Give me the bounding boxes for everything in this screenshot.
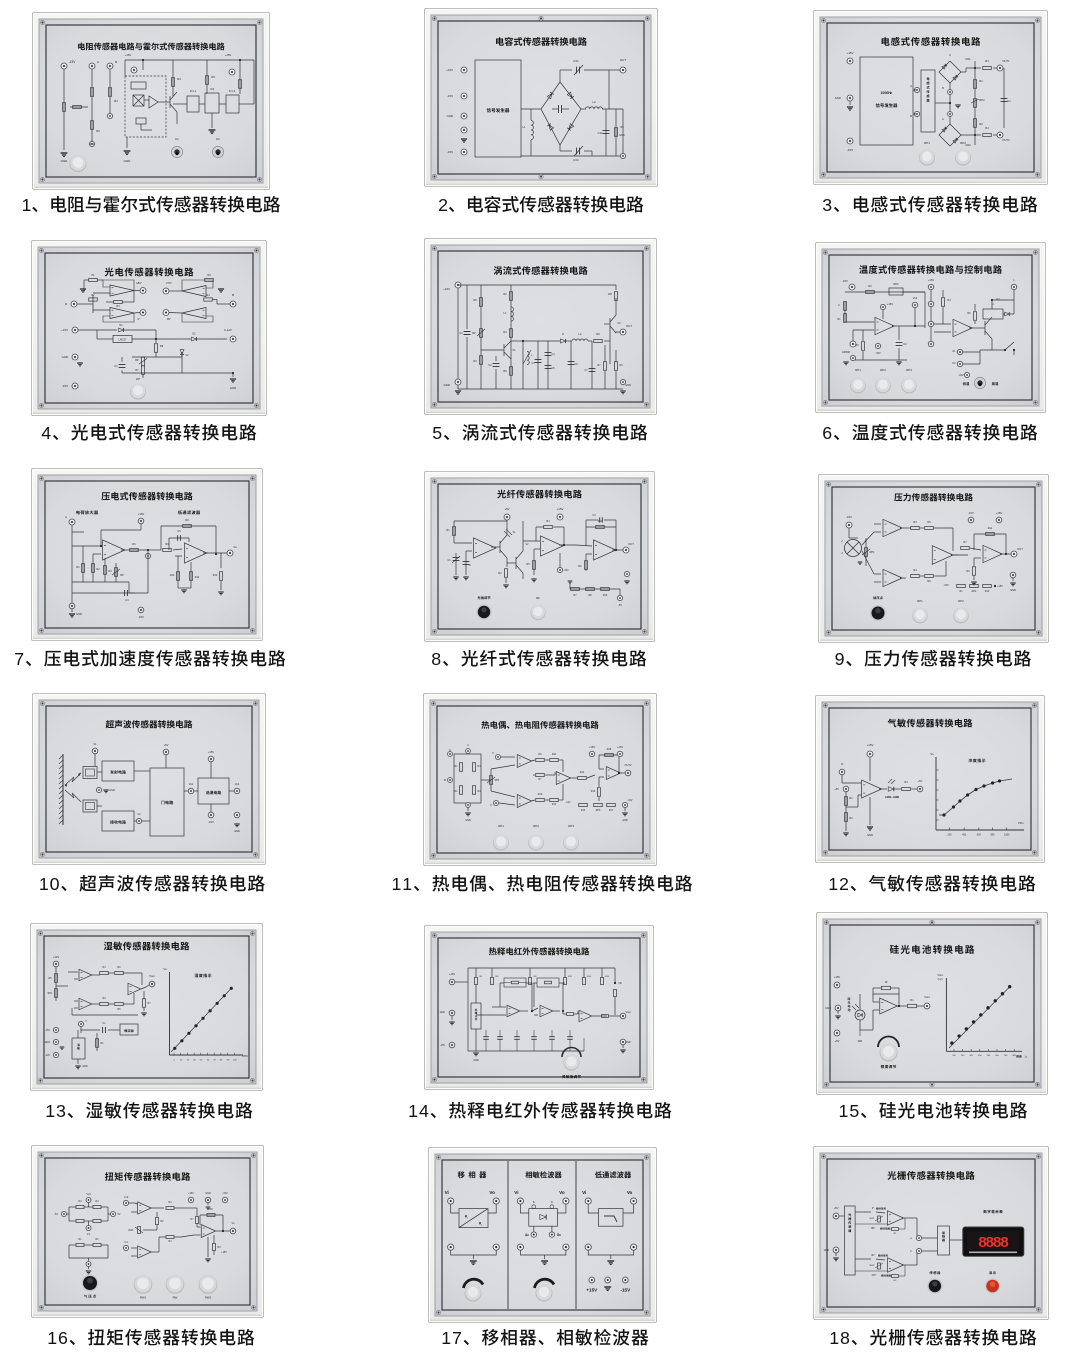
- svg-text:-15V: -15V: [627, 799, 632, 802]
- svg-text:GND: GND: [62, 355, 68, 359]
- svg-text:RP3: RP3: [596, 810, 601, 812]
- svg-text:R2: R2: [96, 129, 100, 133]
- svg-text:z: z: [890, 91, 892, 95]
- svg-text:AD590: AD590: [842, 350, 850, 354]
- svg-text:Ac: Ac: [525, 1233, 529, 1237]
- svg-text:R2: R2: [979, 122, 983, 126]
- svg-text:A: A: [97, 60, 99, 64]
- svg-text:-12V: -12V: [45, 1054, 50, 1057]
- svg-text:R2: R2: [868, 284, 872, 288]
- svg-text:RP3: RP3: [568, 824, 574, 828]
- svg-text:R1: R1: [849, 796, 853, 800]
- svg-text:1: 1: [39, 874, 49, 894]
- svg-text:R3: R3: [114, 99, 118, 103]
- svg-text:1: 1: [45, 1101, 55, 1121]
- svg-text:R1: R1: [910, 998, 914, 1002]
- svg-text:-15V: -15V: [847, 148, 853, 152]
- svg-text:RW2: RW2: [870, 1265, 876, 1267]
- svg-text:OUT2: OUT2: [625, 763, 632, 767]
- svg-text:V+0: V+0: [86, 1193, 91, 1196]
- svg-text:R9: R9: [620, 125, 624, 129]
- svg-text:90°: 90°: [167, 317, 171, 321]
- svg-text:R10: R10: [985, 590, 990, 593]
- svg-text:V1: V1: [93, 742, 97, 746]
- svg-text:-15V: -15V: [563, 569, 569, 572]
- svg-text:RP1: RP1: [495, 779, 500, 782]
- svg-text:-15V: -15V: [842, 279, 848, 283]
- svg-text:+15V: +15V: [586, 1288, 598, 1293]
- svg-text:400: 400: [962, 834, 967, 837]
- svg-text:R2: R2: [849, 816, 853, 820]
- svg-text:L2: L2: [592, 100, 596, 104]
- svg-text:B: B: [232, 293, 234, 297]
- svg-text:R10: R10: [538, 793, 543, 796]
- svg-text:RP: RP: [120, 574, 124, 577]
- svg-text:+15V: +15V: [61, 328, 68, 332]
- svg-text:C: C: [838, 304, 840, 307]
- svg-text:200: 200: [948, 834, 953, 837]
- svg-text:+15V: +15V: [589, 745, 595, 749]
- svg-text:270°: 270°: [872, 1275, 877, 1277]
- svg-text:-15V: -15V: [138, 615, 144, 619]
- svg-text:R4: R4: [985, 126, 989, 130]
- svg-text:-15V: -15V: [846, 515, 852, 519]
- svg-text:-15V: -15V: [968, 511, 974, 515]
- svg-text:GND: GND: [61, 159, 69, 163]
- svg-text:1000: 1000: [1004, 834, 1010, 837]
- svg-text:RW1: RW1: [140, 1296, 147, 1300]
- svg-text:RP1: RP1: [48, 992, 53, 995]
- svg-text:-15V: -15V: [62, 384, 68, 388]
- svg-text:-15V: -15V: [69, 60, 77, 64]
- svg-text:180°: 180°: [871, 1228, 876, 1230]
- svg-text:C10: C10: [598, 131, 603, 135]
- svg-text:Vi: Vi: [582, 1190, 586, 1195]
- svg-text:8888: 8888: [978, 1234, 1008, 1251]
- svg-text:+5V: +5V: [834, 1206, 839, 1210]
- svg-text:0°: 0°: [138, 317, 141, 321]
- svg-text:9: 9: [835, 649, 845, 669]
- svg-text:K2: K2: [216, 137, 220, 141]
- svg-text:+15V: +15V: [846, 51, 853, 55]
- svg-text:V1: V1: [512, 348, 516, 352]
- svg-text:GND: GND: [447, 114, 453, 118]
- svg-text:2: 2: [839, 874, 849, 894]
- svg-text:RP2: RP2: [972, 590, 977, 593]
- svg-text:GND: GND: [835, 96, 841, 100]
- svg-text:+15V: +15V: [834, 975, 841, 979]
- svg-text:R15: R15: [607, 748, 612, 751]
- svg-text:5: 5: [849, 1101, 859, 1121]
- svg-text:270°: 270°: [166, 281, 172, 285]
- svg-text:R17: R17: [609, 810, 614, 812]
- svg-text:R13: R13: [581, 810, 586, 812]
- svg-text:RW: RW: [173, 1296, 178, 1300]
- svg-text:R16: R16: [591, 790, 596, 793]
- svg-text:OUT: OUT: [1017, 547, 1023, 551]
- svg-text:4: 4: [419, 1101, 429, 1121]
- svg-text:GND: GND: [465, 819, 471, 822]
- svg-text:R5: R5: [503, 369, 507, 373]
- svg-text:GND: GND: [825, 1007, 831, 1010]
- svg-text:Vo: Vo: [233, 545, 237, 549]
- svg-text:+15V: +15V: [125, 53, 132, 57]
- svg-text:4: 4: [41, 423, 51, 443]
- svg-text:6: 6: [822, 423, 832, 443]
- svg-text:800: 800: [991, 834, 996, 837]
- svg-text:RP1: RP1: [870, 551, 875, 554]
- svg-text:Rf: Rf: [885, 980, 888, 984]
- svg-text:R6: R6: [596, 332, 600, 336]
- svg-text:R11: R11: [988, 527, 993, 530]
- svg-text:3: 3: [56, 1101, 66, 1121]
- svg-text:OUT: OUT: [626, 324, 632, 328]
- svg-text:Vo1: Vo1: [189, 782, 194, 786]
- svg-text:5V: 5V: [118, 1213, 121, 1216]
- svg-text:C: C: [469, 564, 471, 567]
- svg-text:0°: 0°: [872, 1208, 874, 1210]
- svg-text:GND: GND: [234, 829, 240, 833]
- svg-text:-15V: -15V: [208, 820, 214, 824]
- svg-text:-15V: -15V: [440, 1044, 445, 1047]
- svg-text:1: 1: [828, 874, 838, 894]
- svg-text:1: 1: [408, 1101, 418, 1121]
- svg-text:IC1-1: IC1-1: [190, 89, 197, 93]
- svg-text:GND: GND: [625, 383, 631, 387]
- svg-text:600: 600: [977, 834, 982, 837]
- svg-text:-12V: -12V: [565, 801, 570, 804]
- svg-text:PPm: PPm: [1018, 822, 1023, 825]
- svg-text:B: B: [115, 60, 117, 64]
- svg-text:K1: K1: [175, 137, 179, 141]
- svg-text:V2: V2: [137, 812, 141, 816]
- svg-text:+5V: +5V: [918, 779, 923, 783]
- svg-text:R12: R12: [213, 574, 218, 577]
- svg-text:W1: W1: [90, 142, 95, 146]
- svg-text:Vo: Vo: [627, 1190, 633, 1195]
- svg-text:GND: GND: [473, 1059, 479, 1062]
- svg-text:GND: GND: [45, 1041, 51, 1044]
- svg-text:Vo: Vo: [559, 1190, 565, 1195]
- svg-text:R4: R4: [503, 330, 507, 334]
- svg-text:Vi: Vi: [841, 762, 844, 766]
- svg-text:-15V: -15V: [45, 1029, 50, 1032]
- svg-text:R5: R5: [211, 75, 215, 79]
- svg-text:Vout: Vout: [924, 995, 930, 999]
- svg-text:1: 1: [441, 1328, 451, 1348]
- svg-text:+15V: +15V: [997, 585, 1003, 588]
- svg-text:R8: R8: [608, 292, 612, 296]
- svg-text:+15V: +15V: [996, 511, 1003, 515]
- svg-text:GND: GND: [1010, 588, 1016, 592]
- svg-text:Vcc: Vcc: [996, 297, 1001, 301]
- svg-text:Vo: Vo: [489, 1190, 495, 1195]
- svg-text:Dc: Dc: [557, 1233, 561, 1237]
- svg-text:0: 0: [50, 874, 60, 894]
- svg-text:B: B: [444, 778, 446, 782]
- svg-text:C1: C1: [459, 331, 463, 335]
- svg-text:GND: GND: [205, 1192, 211, 1195]
- svg-text:R2: R2: [503, 292, 507, 296]
- svg-text:RP1: RP1: [924, 141, 930, 145]
- svg-text:RP1: RP1: [855, 368, 861, 372]
- svg-text:A: A: [910, 84, 912, 88]
- svg-text:V2: V2: [617, 321, 621, 325]
- svg-text:L1: L1: [522, 125, 526, 129]
- svg-text:+15V: +15V: [138, 512, 145, 516]
- svg-text:OUT: OUT: [628, 542, 634, 546]
- svg-text:6: 6: [58, 1328, 68, 1348]
- svg-text:LM317: LM317: [119, 338, 127, 342]
- svg-text:RP: RP: [135, 359, 139, 362]
- svg-text:RP1: RP1: [498, 824, 504, 828]
- svg-text:1: 1: [839, 1101, 849, 1121]
- svg-text:Vout: Vout: [625, 1011, 630, 1014]
- svg-text:+12V: +12V: [53, 955, 60, 959]
- svg-text:+15V: +15V: [208, 750, 215, 754]
- svg-text:GND: GND: [824, 1249, 830, 1252]
- svg-text:-15V: -15V: [958, 374, 964, 377]
- svg-text:Vo: Vo: [930, 752, 934, 756]
- svg-text:GND: GND: [622, 819, 628, 822]
- svg-text:5: 5: [432, 423, 442, 443]
- svg-text:180°: 180°: [136, 281, 142, 285]
- svg-text:RP: RP: [136, 377, 140, 381]
- svg-text:RW1: RW1: [870, 1218, 876, 1220]
- svg-text:RH%: RH%: [242, 1055, 248, 1058]
- svg-text:+15V: +15V: [188, 1192, 194, 1195]
- svg-text:1: 1: [47, 1328, 57, 1348]
- svg-text:CX2: CX2: [573, 158, 579, 162]
- svg-text:-15V: -15V: [447, 150, 453, 154]
- svg-text:GND: GND: [76, 612, 82, 616]
- svg-text:GND: GND: [619, 133, 625, 137]
- svg-text:R11: R11: [195, 576, 200, 579]
- svg-text:GND: GND: [867, 833, 873, 837]
- svg-text:R10: R10: [170, 574, 175, 577]
- svg-text:+5V: +5V: [504, 507, 509, 511]
- svg-text:C2: C2: [488, 363, 492, 367]
- svg-text:0-12V: 0-12V: [224, 328, 232, 332]
- svg-text:+15V: +15V: [446, 68, 453, 72]
- svg-text:GND: GND: [82, 1065, 88, 1068]
- svg-text:+5V: +5V: [164, 743, 169, 747]
- svg-text:3: 3: [822, 195, 832, 215]
- svg-text:OUT2: OUT2: [1002, 138, 1010, 142]
- svg-text:GND: GND: [444, 383, 450, 387]
- svg-text:D: D: [551, 1201, 553, 1204]
- svg-text:1: 1: [829, 1328, 839, 1348]
- svg-text:+15V: +15V: [449, 972, 455, 976]
- svg-text:1: 1: [391, 874, 401, 894]
- svg-text:Vout: Vout: [937, 973, 942, 977]
- svg-text:R4: R4: [177, 77, 181, 81]
- svg-text:-5V: -5V: [618, 604, 622, 607]
- svg-text:7: 7: [452, 1328, 462, 1348]
- svg-text:8: 8: [431, 649, 441, 669]
- svg-text:RW1: RW1: [128, 1230, 134, 1232]
- svg-text:Vi: Vi: [514, 1190, 518, 1195]
- svg-text:UR2: UR2: [965, 143, 971, 147]
- svg-text:R10: R10: [603, 594, 608, 597]
- svg-text:A: A: [65, 515, 67, 519]
- svg-text:R3: R3: [473, 359, 477, 363]
- svg-text:RP2: RP2: [893, 282, 899, 286]
- svg-text:+15V: +15V: [887, 302, 893, 306]
- svg-text:R1: R1: [979, 79, 983, 83]
- svg-text:8: 8: [840, 1328, 850, 1348]
- svg-text:1: 1: [402, 874, 412, 894]
- svg-text:RF: RF: [536, 596, 540, 600]
- svg-text:CX1: CX1: [573, 59, 579, 63]
- svg-text:B: B: [910, 114, 912, 118]
- svg-text:1: 1: [21, 195, 31, 215]
- svg-text:RP2: RP2: [533, 824, 539, 828]
- svg-text:2: 2: [438, 195, 448, 215]
- svg-text:OUT1: OUT1: [1002, 59, 1010, 63]
- svg-text:-15V: -15V: [875, 352, 881, 355]
- svg-text:+15V: +15V: [443, 287, 450, 291]
- svg-text:-15V: -15V: [943, 584, 949, 587]
- svg-text:+15V: +15V: [557, 507, 564, 511]
- svg-text:GND: GND: [124, 159, 132, 163]
- svg-text:Vi: Vi: [445, 1190, 449, 1195]
- svg-text:+5V: +5V: [835, 1039, 840, 1043]
- svg-text:R12: R12: [552, 803, 557, 806]
- svg-text:D: D: [562, 332, 564, 336]
- svg-text:C1: C1: [1007, 99, 1011, 103]
- svg-text:+15V: +15V: [221, 1251, 227, 1254]
- svg-text:OUT: OUT: [620, 58, 627, 62]
- svg-text:+15V: +15V: [867, 743, 874, 747]
- svg-text:7: 7: [14, 649, 24, 669]
- svg-text:+5V: +5V: [834, 787, 839, 791]
- svg-text:Vo1: Vo1: [913, 296, 918, 300]
- svg-text:R3: R3: [985, 59, 989, 63]
- svg-text:RP2: RP2: [880, 368, 886, 372]
- svg-text:GND: GND: [625, 1041, 631, 1044]
- svg-text:R11: R11: [552, 753, 557, 756]
- svg-text:Vo: Vo: [163, 967, 167, 971]
- svg-text:RW2: RW2: [205, 1296, 212, 1300]
- svg-text:-15V: -15V: [620, 1288, 631, 1293]
- svg-text:WR: WR: [858, 1039, 863, 1043]
- svg-text:UR1: UR1: [965, 57, 971, 61]
- svg-text:VD: VD: [618, 982, 622, 985]
- svg-text:RP3: RP3: [906, 368, 912, 372]
- svg-text:IC2: IC2: [210, 87, 215, 91]
- svg-text:-15V: -15V: [222, 1192, 228, 1195]
- svg-text:+15V: +15V: [225, 53, 232, 57]
- svg-text:R6: R6: [473, 298, 477, 302]
- svg-text:-5V: -5V: [54, 1213, 58, 1216]
- svg-text:GND: GND: [440, 1011, 446, 1014]
- svg-text:RP2: RP2: [960, 141, 966, 145]
- svg-text:90°: 90°: [871, 1255, 875, 1257]
- svg-text:-15V: -15V: [447, 94, 453, 98]
- svg-text:GND: GND: [230, 386, 236, 390]
- svg-text:RP: RP: [472, 331, 476, 335]
- svg-text:R14: R14: [580, 771, 585, 774]
- svg-text:+15V: +15V: [928, 278, 934, 282]
- svg-text:(mv): (mv): [938, 978, 943, 981]
- svg-text:Vout: Vout: [149, 974, 155, 978]
- svg-text:C: C: [949, 53, 951, 57]
- svg-text:RP2: RP2: [958, 599, 964, 603]
- svg-text:RP2: RP2: [979, 98, 985, 102]
- svg-text:+15V: +15V: [617, 745, 623, 749]
- svg-text:GND: GND: [109, 788, 115, 792]
- svg-text:IC1-2: IC1-2: [229, 89, 236, 93]
- svg-text:V+0: V+0: [124, 1196, 129, 1199]
- svg-text:RP1: RP1: [917, 599, 923, 603]
- svg-text:R3: R3: [904, 780, 908, 784]
- svg-text:Vo2: Vo2: [235, 782, 240, 786]
